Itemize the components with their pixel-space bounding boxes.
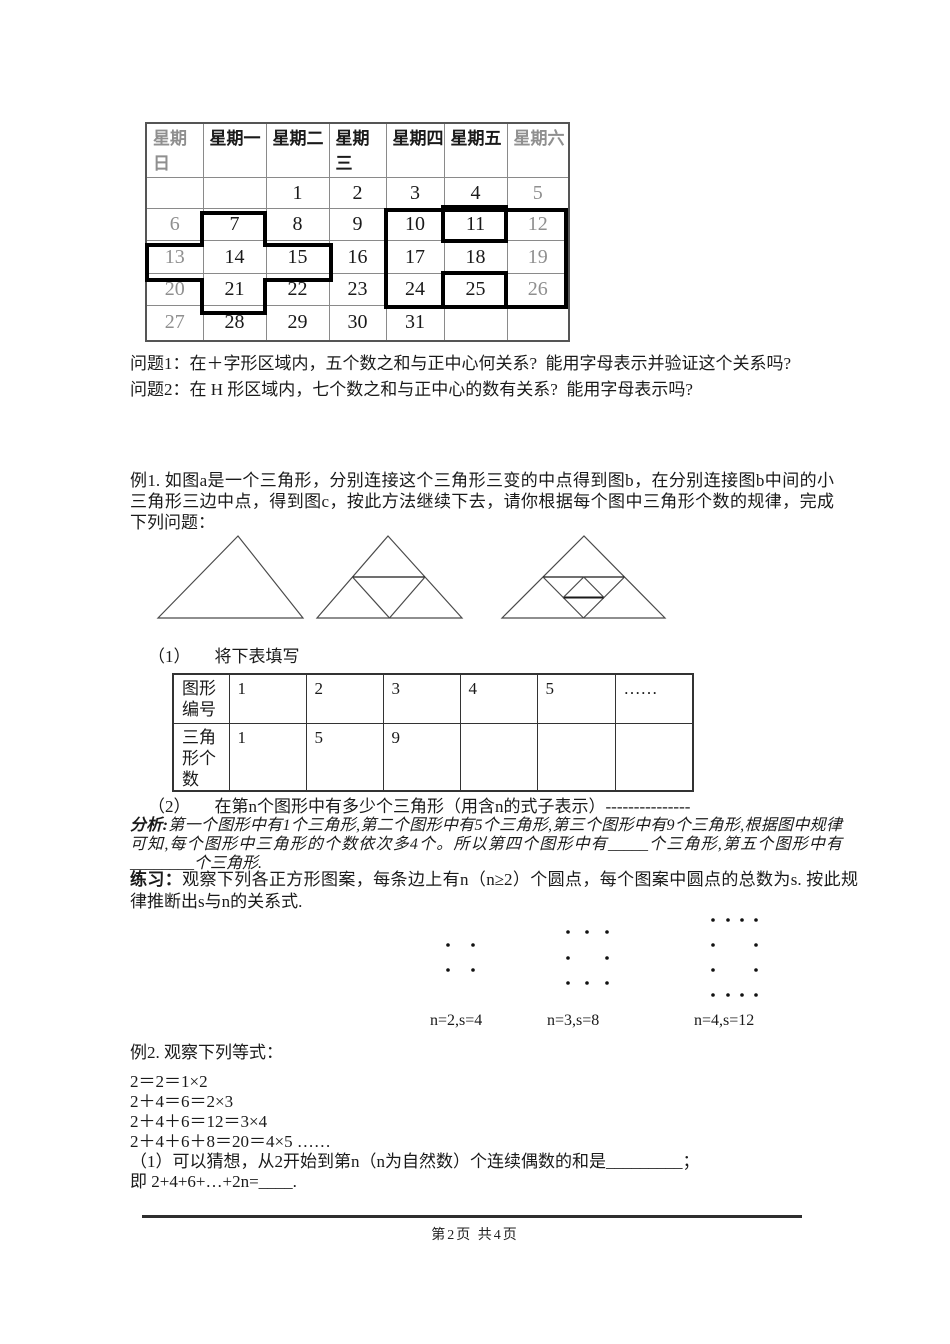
fill-table-cell: 5 (537, 674, 615, 723)
calendar-header-row: 星期日 星期一 星期二 星期三 星期四 星期五 星期六 (146, 123, 569, 178)
subquestion-1-label: （1） (148, 647, 191, 666)
calendar-date-cell: 31 (386, 306, 444, 341)
calendar-header-cell: 星期日 (146, 123, 203, 178)
subquestion-1: （1）将下表填写 (148, 642, 300, 667)
example-2-equations: 2＝2＝1×2 2＋4＝6＝2×3 2＋4＋6＝12＝3×4 2＋4＋6＋8＝2… (130, 1072, 700, 1192)
calendar-date-cell: 3 (386, 178, 444, 209)
calendar-week-row: 27 28 29 30 31 (146, 306, 569, 341)
calendar-header-cell: 星期一 (203, 123, 266, 178)
fill-table-cell: 1 (229, 674, 306, 723)
calendar-date-cell: 20 (146, 274, 203, 306)
calendar-date-cell: 10 (386, 209, 444, 241)
calendar-date-cell (146, 178, 203, 209)
practice-text: 观察下列各正方形图案，每条边上有n（n≥2）个圆点，每个图案中圆点的总数为s. … (130, 870, 858, 911)
calendar-header-cell: 星期五 (444, 123, 507, 178)
calendar-date-cell: 11 (444, 209, 507, 241)
question-1: 问题1：在＋字形区域内，五个数之和与正中心何关系? 能用字母表示并验证这个关系吗… (130, 351, 920, 377)
triangle-figure-a (158, 536, 303, 618)
fill-table-cell: 1 (229, 723, 306, 791)
calendar-date-cell (507, 306, 569, 341)
dot-figure-label: n=4,s=12 (694, 1012, 754, 1030)
sum-formula-line: 即 2+4+6+…+2n=____. (130, 1172, 700, 1192)
analysis-text: 第一个图形中有1个三角形,第二个图形中有5个三角形,第三个图形中有9个三角形,根… (130, 817, 842, 872)
question-2: 问题2：在 H 形区域内，七个数之和与正中心的数有关系? 能用字母表示吗? (130, 377, 920, 403)
calendar-date-cell (444, 306, 507, 341)
calendar-date-cell: 21 (203, 274, 266, 306)
calendar-date-cell: 2 (329, 178, 386, 209)
subquestion-2: （2）在第n个图形中有多少个三角形（用含n的式子表示）-------------… (148, 792, 690, 817)
questions-block: 问题1：在＋字形区域内，五个数之和与正中心何关系? 能用字母表示并验证这个关系吗… (130, 351, 920, 403)
triangle-figure-b (317, 536, 462, 618)
equation-line: 2＋4＋6＋8＝20＝4×5 …… (130, 1132, 700, 1152)
triangle-figure-c (502, 536, 665, 618)
calendar-week-row: 13 14 15 16 17 18 19 (146, 241, 569, 274)
calendar-date-cell: 18 (444, 241, 507, 274)
calendar-table: 星期日 星期一 星期二 星期三 星期四 星期五 星期六 1 2 3 4 5 6 … (145, 122, 570, 342)
fill-table-cell (460, 723, 537, 791)
calendar-date-cell (203, 178, 266, 209)
calendar-date-cell: 14 (203, 241, 266, 274)
equation-line: 2＋4＋6＝12＝3×4 (130, 1112, 700, 1132)
calendar-date-cell: 23 (329, 274, 386, 306)
calendar-figure: 星期日 星期一 星期二 星期三 星期四 星期五 星期六 1 2 3 4 5 6 … (145, 122, 568, 340)
analysis-paragraph: 分析:第一个图形中有1个三角形,第二个图形中有5个三角形,第三个图形中有9个三角… (130, 816, 842, 873)
fill-table-cell: 5 (306, 723, 383, 791)
calendar-week-row: 20 21 22 23 24 25 26 (146, 274, 569, 306)
fill-table-cell: 2 (306, 674, 383, 723)
calendar-date-cell: 9 (329, 209, 386, 241)
equation-line: 2＝2＝1×2 (130, 1072, 700, 1092)
page-number: 第2页 共4页 (0, 1224, 950, 1244)
calendar-date-cell: 24 (386, 274, 444, 306)
practice-paragraph: 练习：观察下列各正方形图案，每条边上有n（n≥2）个圆点，每个图案中圆点的总数为… (130, 869, 858, 913)
calendar-date-cell: 27 (146, 306, 203, 341)
calendar-week-row: 1 2 3 4 5 (146, 178, 569, 209)
calendar-date-cell: 17 (386, 241, 444, 274)
practice-label: 练习： (130, 870, 182, 889)
fill-table-cell (537, 723, 615, 791)
dot-square-n4 (711, 918, 758, 997)
fill-table-cell: 三角形个数 (173, 723, 229, 791)
fill-table-cell: 4 (460, 674, 537, 723)
example-2-title: 例2. 观察下列等式： (130, 1038, 283, 1063)
calendar-header-cell: 星期二 (266, 123, 329, 178)
calendar-date-cell: 1 (266, 178, 329, 209)
subquestion-2-text: 在第n个图形中有多少个三角形（用含n的式子表示）--------------- (215, 797, 691, 816)
fill-table-cell (615, 723, 693, 791)
subquestion-2-label: （2） (148, 797, 191, 816)
calendar-date-cell: 28 (203, 306, 266, 341)
analysis-label: 分析: (130, 817, 168, 834)
table-row: 图形编号 1 2 3 4 5 …… (173, 674, 693, 723)
calendar-date-cell: 12 (507, 209, 569, 241)
subquestion-1-text: 将下表填写 (215, 647, 300, 666)
fill-table-cell: 3 (383, 674, 460, 723)
calendar-date-cell: 22 (266, 274, 329, 306)
calendar-date-cell: 13 (146, 241, 203, 274)
triangle-figures (150, 533, 670, 623)
dot-square-n2 (446, 943, 475, 972)
calendar-date-cell: 29 (266, 306, 329, 341)
fill-table-cell: …… (615, 674, 693, 723)
dot-figure-label: n=2,s=4 (430, 1012, 482, 1030)
calendar-date-cell: 6 (146, 209, 203, 241)
fill-table-wrap: 图形编号 1 2 3 4 5 …… 三角形个数 1 5 9 (172, 673, 694, 792)
calendar-date-cell: 30 (329, 306, 386, 341)
calendar-week-row: 6 7 8 9 10 11 12 (146, 209, 569, 241)
footer-rule (142, 1215, 802, 1218)
calendar-date-cell: 4 (444, 178, 507, 209)
dot-figure-label: n=3,s=8 (547, 1012, 599, 1030)
table-row: 三角形个数 1 5 9 (173, 723, 693, 791)
calendar-header-cell: 星期六 (507, 123, 569, 178)
calendar-date-cell: 5 (507, 178, 569, 209)
calendar-date-cell: 7 (203, 209, 266, 241)
calendar-header-cell: 星期三 (329, 123, 386, 178)
fill-table-cell: 图形编号 (173, 674, 229, 723)
equation-line: 2＋4＝6＝2×3 (130, 1092, 700, 1112)
fill-table: 图形编号 1 2 3 4 5 …… 三角形个数 1 5 9 (172, 673, 694, 792)
calendar-header-cell: 星期四 (386, 123, 444, 178)
calendar-date-cell: 26 (507, 274, 569, 306)
fill-table-cell: 9 (383, 723, 460, 791)
calendar-date-cell: 16 (329, 241, 386, 274)
guess-line: （1）可以猜想，从2开始到第n（n为自然数）个连续偶数的和是_________； (130, 1152, 700, 1172)
calendar-date-cell: 8 (266, 209, 329, 241)
dot-square-n3 (566, 930, 609, 985)
dot-figures (400, 912, 820, 1007)
calendar-date-cell: 25 (444, 274, 507, 306)
calendar-date-cell: 15 (266, 241, 329, 274)
example-1-text: 例1. 如图a是一个三角形，分别连接这个三角形三变的中点得到图b，在分别连接图b… (130, 470, 834, 533)
calendar-date-cell: 19 (507, 241, 569, 274)
